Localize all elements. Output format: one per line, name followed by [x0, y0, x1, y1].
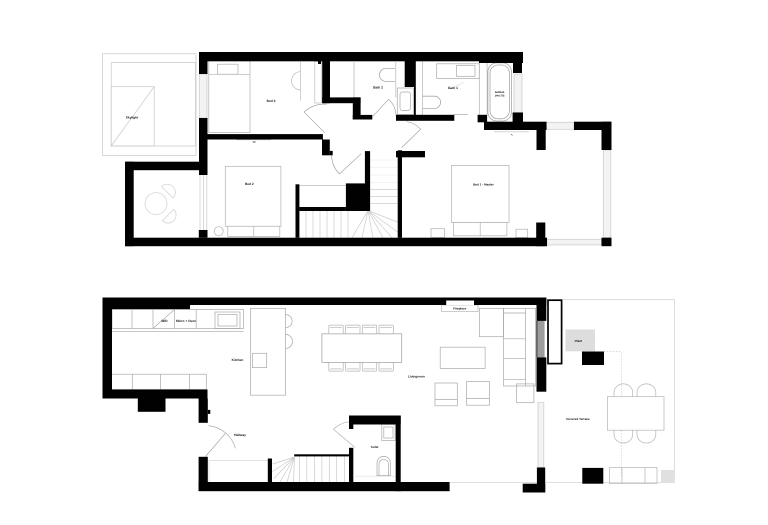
- svg-text:Micro + Oven: Micro + Oven: [176, 319, 196, 323]
- svg-text:Bed 3: Bed 3: [267, 99, 276, 103]
- svg-text:Livingroom: Livingroom: [408, 375, 425, 379]
- svg-text:Toilet: Toilet: [371, 445, 379, 449]
- svg-text:Bed 2: Bed 2: [245, 182, 254, 186]
- svg-text:Hallway: Hallway: [234, 433, 246, 437]
- svg-text:Bath 1: Bath 1: [448, 86, 458, 90]
- svg-text:Bed 1 - Master: Bed 1 - Master: [473, 183, 494, 187]
- svg-text:Bath 2: Bath 2: [373, 86, 383, 90]
- svg-text:Fireplace: Fireplace: [453, 307, 467, 311]
- svg-text:Plant: Plant: [575, 339, 582, 343]
- svg-text:Covered Terrace: Covered Terrace: [566, 417, 590, 421]
- svg-text:Kitchen: Kitchen: [232, 358, 244, 362]
- svg-text:TV: TV: [252, 141, 256, 144]
- svg-text:W/D: W/D: [161, 319, 168, 323]
- svg-text:(H=170): (H=170): [495, 95, 505, 98]
- svg-text:Skylight: Skylight: [126, 116, 139, 120]
